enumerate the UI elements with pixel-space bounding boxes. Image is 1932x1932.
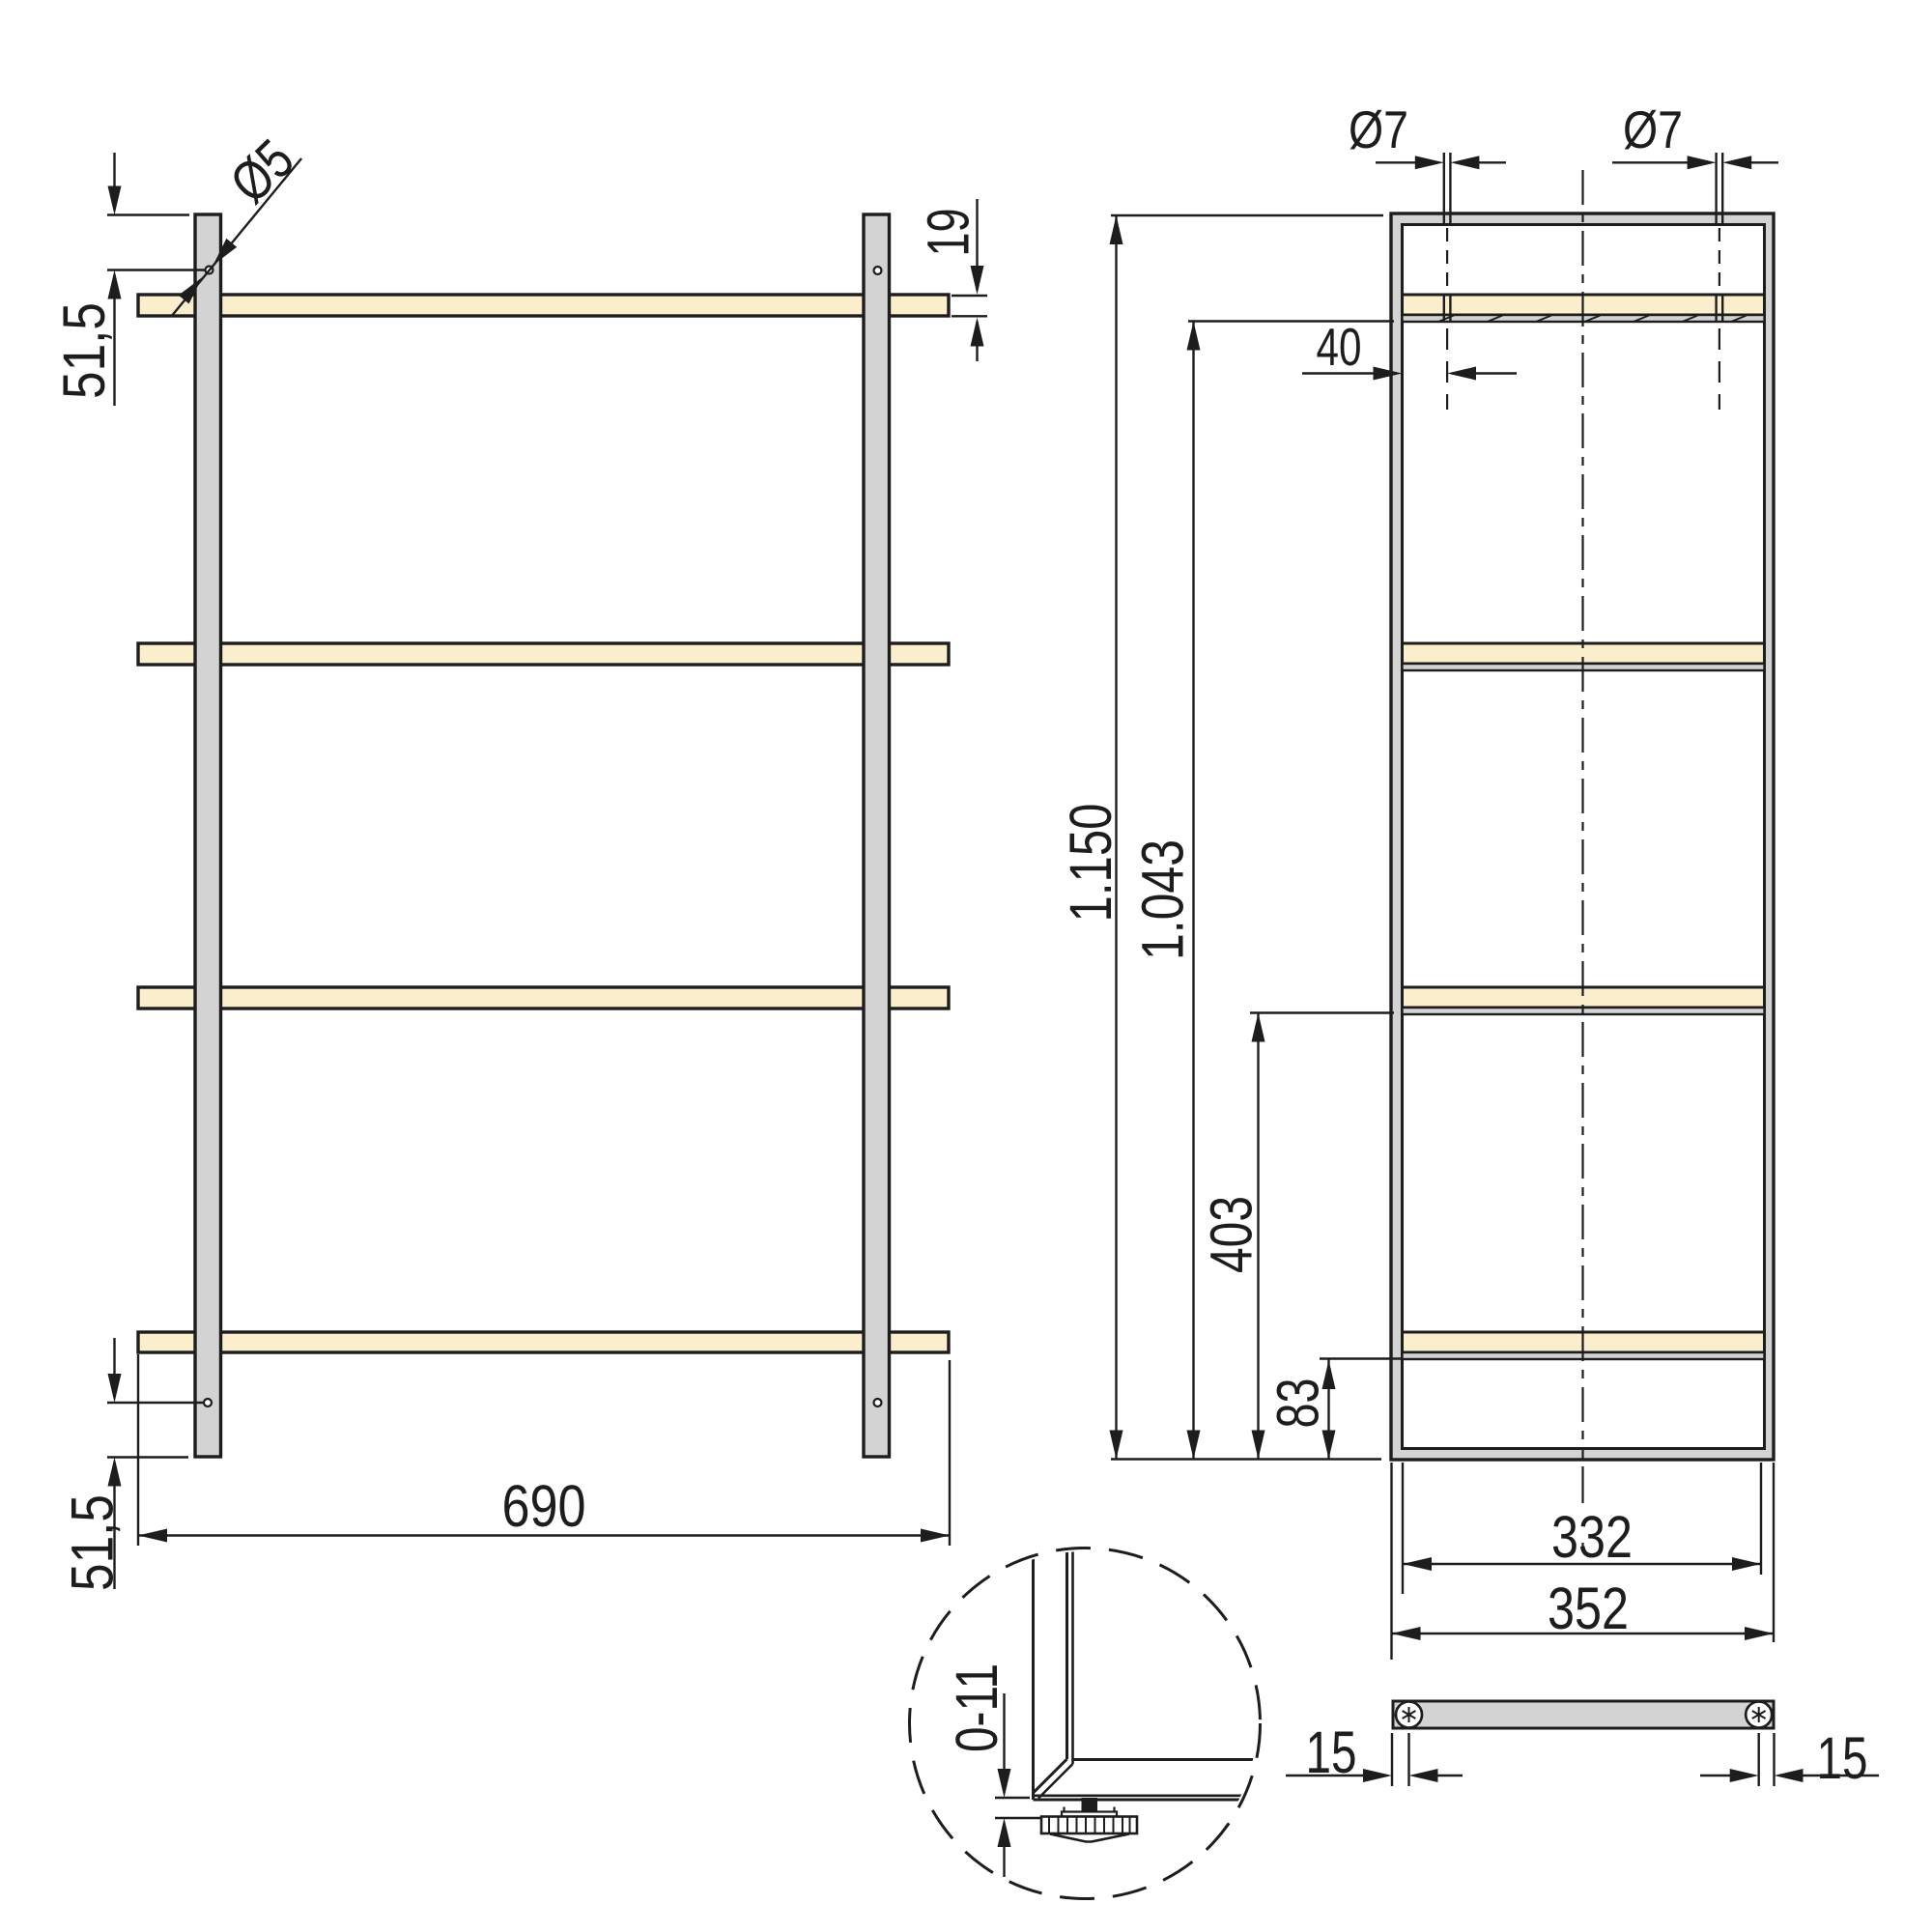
svg-text:51,5: 51,5: [51, 302, 117, 399]
svg-text:332: 332: [1551, 1504, 1633, 1570]
svg-text:19: 19: [916, 209, 981, 257]
svg-text:51,5: 51,5: [60, 1494, 126, 1591]
svg-text:403: 403: [1199, 1196, 1264, 1273]
svg-text:83: 83: [1265, 1378, 1331, 1429]
svg-text:1.150: 1.150: [1058, 804, 1123, 923]
svg-text:1.043: 1.043: [1130, 839, 1196, 960]
svg-text:690: 690: [502, 1473, 586, 1539]
svg-text:15: 15: [1306, 1719, 1357, 1785]
svg-text:Ø7: Ø7: [1349, 99, 1408, 159]
svg-text:Ø5: Ø5: [218, 128, 305, 215]
svg-text:15: 15: [1817, 1725, 1868, 1791]
svg-text:40: 40: [1317, 317, 1362, 377]
svg-text:0-11: 0-11: [944, 1663, 1009, 1752]
svg-text:352: 352: [1548, 1576, 1629, 1641]
svg-text:Ø7: Ø7: [1623, 99, 1683, 159]
